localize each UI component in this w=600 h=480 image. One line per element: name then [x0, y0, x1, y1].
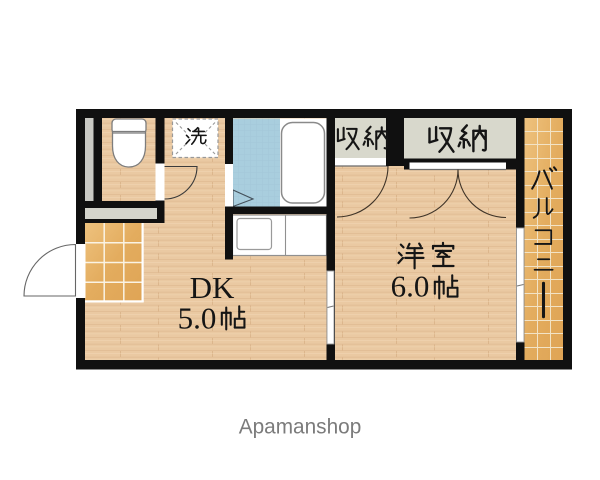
svg-text:5.0: 5.0 [178, 301, 217, 336]
svg-text:6.0: 6.0 [391, 269, 430, 304]
svg-text:Apamanshop: Apamanshop [239, 416, 362, 439]
